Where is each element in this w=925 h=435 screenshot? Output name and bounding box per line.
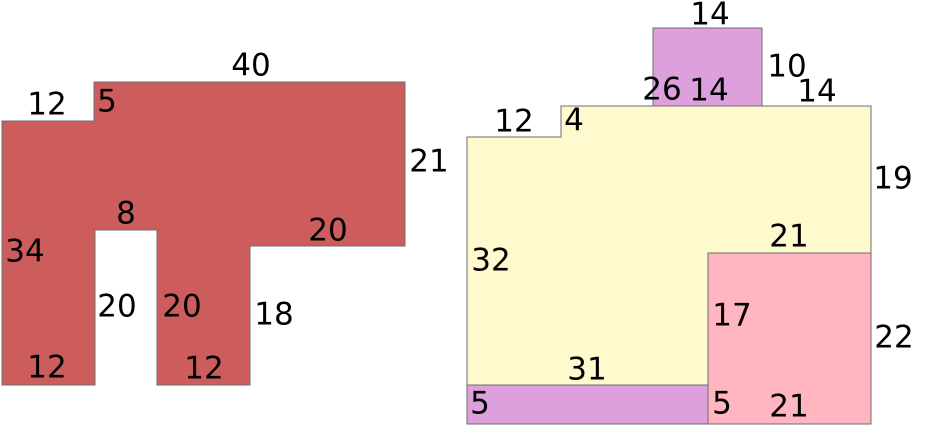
plum-bottom-strip-shape [467, 385, 708, 424]
dimension-label-step-height-4: 4 [564, 106, 584, 137]
dimension-label-pink-bottom-width-21: 21 [769, 392, 808, 423]
dimension-label-pink-top-width-21: 21 [769, 222, 808, 253]
dimension-label-left-height-32: 32 [471, 246, 510, 277]
dimension-label-notch-top-width-8: 8 [116, 199, 136, 230]
dimension-label-notch-left-height-20: 20 [97, 292, 136, 323]
dimension-label-right-height-21: 21 [409, 147, 448, 178]
dimension-label-pink-right-height-22: 22 [874, 323, 913, 354]
dimension-label-bottom-left-width-12: 12 [27, 353, 66, 384]
dimension-label-upper-left-width-12: 12 [494, 107, 533, 138]
dimension-label-plum-top-width-14: 14 [690, 0, 729, 31]
dimension-label-pink-lower-left-height-5: 5 [712, 389, 732, 420]
dimension-label-right-height-19: 19 [873, 164, 912, 195]
dimension-label-yellow-bottom-width-31: 31 [567, 355, 606, 386]
dimension-label-bottom-middle-width-12: 12 [184, 354, 223, 385]
dimension-label-left-height-34: 34 [5, 237, 44, 268]
dimension-label-step-height-5: 5 [97, 87, 117, 118]
dimension-label-pink-left-height-17: 17 [712, 301, 751, 332]
dimension-label-upper-left-width-12: 12 [27, 90, 66, 121]
dimension-label-top-edge-right-14: 14 [797, 77, 836, 108]
geometry-worksheet-canvas: 4012521208342020181212141026141412419213… [0, 0, 925, 435]
dimension-label-top-edge-left-26: 26 [642, 75, 681, 106]
dimension-label-inner-right-height-18: 18 [254, 300, 293, 331]
dimension-label-arm-bottom-width-20: 20 [308, 216, 347, 247]
dimension-label-strip-left-height-5: 5 [470, 389, 490, 420]
dimension-label-top-width-40: 40 [231, 51, 270, 82]
dimension-label-plum-bottom-width-14: 14 [689, 76, 728, 107]
dimension-label-notch-right-height-20: 20 [162, 292, 201, 323]
